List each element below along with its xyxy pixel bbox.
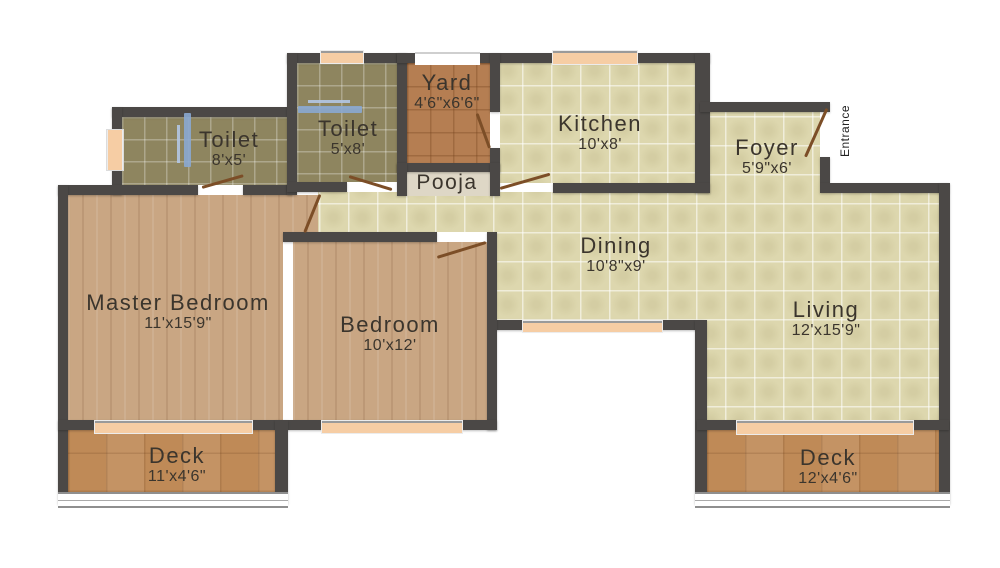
master-bedroom-label: Master Bedroom 11'x15'9" xyxy=(86,290,270,334)
wall-bedroom-top xyxy=(283,232,437,242)
wall-toilet1-top xyxy=(112,107,292,117)
room-dims: 12'x15'9" xyxy=(792,322,861,340)
room-dims: 5'x8' xyxy=(318,141,378,159)
master-bedroom-deck-window xyxy=(95,421,252,433)
wall-toilet1-bottom-right xyxy=(243,185,293,195)
foyer-label: Foyer 5'9"x6' xyxy=(735,135,799,179)
wall-toilet1-bottom-left xyxy=(58,185,198,195)
toilet-2-shower-rail xyxy=(308,100,350,103)
wall-kitchen-right xyxy=(695,53,710,193)
room-dims: 11'x15'9" xyxy=(86,315,270,333)
toilet-2-label: Toilet 5'x8' xyxy=(318,116,378,160)
toilet-2-shower-fixture xyxy=(298,106,362,113)
room-name: Toilet xyxy=(318,116,378,141)
wall-pooja-left xyxy=(397,163,407,196)
dining-window xyxy=(523,321,662,332)
toilet-1-label: Toilet 8'x5' xyxy=(199,127,259,171)
wall-living-right xyxy=(939,183,950,504)
room-name: Kitchen xyxy=(558,111,642,136)
wall-entrance-side xyxy=(820,157,830,183)
room-name: Deck xyxy=(798,445,857,470)
deck-left-label: Deck 11'x4'6" xyxy=(148,443,206,487)
wall-toilet2-bottom xyxy=(287,182,347,192)
living-deck-window xyxy=(737,421,913,434)
living-label: Living 12'x15'9" xyxy=(792,297,861,341)
deck-right-label: Deck 12'x4'6" xyxy=(798,445,857,489)
room-name: Yard xyxy=(414,70,480,95)
room-dims: 5'9"x6' xyxy=(735,160,799,178)
room-dims: 11'x4'6" xyxy=(148,468,206,486)
toilet-1-shower-fixture xyxy=(184,113,191,167)
passage-floor xyxy=(318,192,497,232)
room-name: Master Bedroom xyxy=(86,290,270,315)
wall-foyer-top xyxy=(700,102,830,112)
wall-yard-right-upper xyxy=(490,53,500,112)
wall-living-top xyxy=(820,183,949,193)
toilet-1-shower-rail xyxy=(177,125,180,163)
room-name: Dining xyxy=(580,233,651,258)
pooja-label: Pooja xyxy=(416,171,477,195)
room-dims: 8'x5' xyxy=(199,152,259,170)
room-name: Bedroom xyxy=(340,312,440,337)
yard-opening xyxy=(415,52,480,65)
wall-yard-top-stub xyxy=(397,53,415,63)
entrance-label: Entrance xyxy=(838,105,852,157)
wall-living-left-lower xyxy=(695,320,707,504)
toilet-1-window xyxy=(107,130,123,170)
room-dims: 10'x8' xyxy=(558,136,642,154)
floor-plan: Toilet 8'x5' Toilet 5'x8' Yard 4'6"x6'6"… xyxy=(0,0,1000,568)
deck-right-railing xyxy=(695,492,950,508)
wall-kitchen-bottom xyxy=(553,183,710,193)
room-name: Foyer xyxy=(735,135,799,160)
wall-toilet2-yard xyxy=(397,53,407,172)
wall-toilet2-left xyxy=(287,53,297,195)
room-name: Pooja xyxy=(416,171,477,195)
room-dims: 10'8"x9' xyxy=(580,258,651,276)
toilet-2-window xyxy=(321,51,363,63)
bedroom-window xyxy=(322,421,462,433)
bedroom-label: Bedroom 10'x12' xyxy=(340,312,440,356)
wall-living-bottom-right xyxy=(908,420,949,430)
room-name: Deck xyxy=(148,443,206,468)
yard-label: Yard 4'6"x6'6" xyxy=(414,70,480,114)
room-dims: 4'6"x6'6" xyxy=(414,95,480,113)
wall-master-bedroom-left xyxy=(58,185,68,504)
wall-living-bottom-left xyxy=(697,420,742,430)
wall-bedroom-right xyxy=(487,232,497,430)
deck-left-railing xyxy=(58,492,288,508)
kitchen-window xyxy=(553,51,637,64)
room-dims: 12'x4'6" xyxy=(798,470,857,488)
dining-label: Dining 10'8"x9' xyxy=(580,233,651,277)
room-name: Toilet xyxy=(199,127,259,152)
room-name: Living xyxy=(792,297,861,322)
room-dims: 10'x12' xyxy=(340,337,440,355)
kitchen-label: Kitchen 10'x8' xyxy=(558,111,642,155)
wall-pooja-right xyxy=(490,163,500,196)
